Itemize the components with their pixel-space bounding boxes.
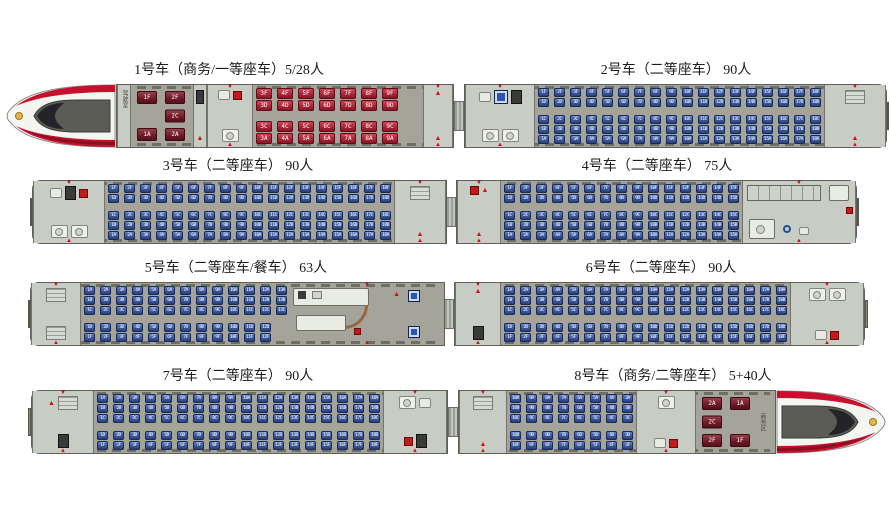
seat: 3F: [116, 333, 127, 342]
seat-group-top: 10A10B10C: [241, 394, 252, 423]
car-body-6: ▲▼▲1A1B1C1D1F2A2B2C2D2F3A3B3C3D3F4A4B4C4…: [454, 282, 865, 346]
seat: 11A: [244, 286, 255, 295]
car-strip: ▼▲1F1D1C1B1A2F2D2C2B2A3F3D3C3B3A4F4D4C4B…: [464, 84, 888, 148]
seat: 3B: [116, 296, 127, 305]
seat-group-top: 7A7B7C: [193, 394, 204, 423]
seat-group-bottom: 10D10F: [228, 323, 239, 342]
seat: 13B: [730, 125, 741, 134]
seat: 9D: [632, 323, 643, 332]
seat: 16C: [348, 211, 359, 220]
seat-group-top: 15F15D: [728, 184, 739, 203]
seat: 5A: [590, 394, 601, 403]
attendant-icon: ▲: [197, 135, 204, 142]
seat-group-bottom: 7D7F: [193, 431, 204, 450]
toilet-icon: [222, 129, 239, 142]
equipment-cabinet-icon: [65, 186, 76, 200]
seat-group-top: 15F15D: [762, 88, 773, 107]
seat: 17B: [364, 221, 375, 230]
seat-column: 1A1B1C1D1F: [97, 394, 108, 450]
vestibule: ▼▲: [33, 181, 105, 243]
seat: 11B: [257, 404, 268, 413]
seat: 4F: [552, 333, 563, 342]
seat: 4C: [552, 306, 563, 315]
service-box-icon: [846, 207, 853, 214]
door-marker-icon: ▼: [412, 390, 418, 396]
seat: 3F: [570, 88, 581, 97]
seat: 7A: [558, 394, 569, 403]
seat-group-top: 13F13D: [300, 184, 311, 203]
seat: 4C: [606, 414, 617, 423]
seat: 2D: [520, 323, 531, 332]
seat-group-bottom: 1D1F: [97, 431, 108, 450]
seat-column: 4A4B4C4D4F: [145, 394, 156, 450]
seat: 1C: [108, 211, 119, 220]
seat-group-bottom: 3D3F: [536, 323, 547, 342]
seat: 1C: [84, 306, 95, 315]
seat: 10F: [228, 333, 239, 342]
seat: 2B: [520, 296, 531, 305]
seat: 18C: [380, 211, 391, 220]
seat: 10F: [252, 184, 263, 193]
seat: 4A: [552, 231, 563, 240]
seat-group-top: 5F5D: [298, 88, 314, 111]
seat: 13F: [696, 184, 707, 193]
seat: 8A: [542, 394, 553, 403]
seat-column: 15F15D15C15B15A: [728, 184, 739, 240]
seat-column: 14F14D14C14B14A: [712, 184, 723, 240]
seat: 17A: [364, 231, 375, 240]
seat-group-bottom: 1C1B1A: [108, 211, 119, 240]
vestibule-bottom-features: [639, 438, 693, 448]
seat: 10A: [228, 286, 239, 295]
car-coupler: [454, 101, 464, 131]
seat: 9A: [526, 394, 537, 403]
seat: 10B: [252, 221, 263, 230]
seat-group-bottom: 4D4F: [145, 431, 156, 450]
seat-column: 12A12B12C12D12F: [680, 286, 691, 342]
seat: 7B: [600, 296, 611, 305]
seat: 3A: [622, 394, 633, 403]
seat: 13B: [276, 296, 287, 305]
seat: 5B: [568, 221, 579, 230]
seat: 13C: [276, 306, 287, 315]
seat: 10C: [682, 115, 693, 124]
car-strip: ▲▼▲1A1B1C1D1F2A2B2C2D2F3A3B3C3D3F4A4B4C4…: [454, 282, 868, 346]
seat-group-top: 8A8B8C: [209, 394, 220, 423]
seat-column: 6A6B6C6D6F: [164, 286, 175, 342]
service-box-icon: [404, 437, 413, 446]
train-row-1: 1号车（商务/一等座车）5/28人驾驶室1F1A2F2C2A▲▼▲3F3D3C3…: [4, 60, 888, 148]
attendant-icon: ▲: [480, 441, 487, 448]
seat: 9F: [225, 441, 236, 450]
seat: 17B: [760, 296, 771, 305]
seat: 1D: [504, 194, 515, 203]
seat-group-top: 12A12B12C: [260, 286, 271, 315]
seat: 1B: [538, 125, 549, 134]
seat-group-bottom: 4C4B4A: [586, 115, 597, 144]
seat: 8D: [616, 323, 627, 332]
seat: 8F: [209, 441, 220, 450]
seat-group-bottom: 10D10F: [241, 431, 252, 450]
seat: 10C: [252, 211, 263, 220]
seat: 18A: [810, 135, 821, 144]
seat: 15F: [332, 184, 343, 193]
seat-group-bottom: 13C13B13A: [300, 211, 311, 240]
seat-group-bottom: 5D5F: [568, 323, 579, 342]
seat: 13A: [289, 394, 300, 403]
seat: 2C: [165, 110, 185, 123]
vending-machine-icon: [408, 290, 420, 302]
luggage-rack-icon: [747, 185, 821, 201]
seat: 12D: [680, 194, 691, 203]
seat-group-bottom: 8C8B8A: [616, 211, 627, 240]
seat: 17B: [794, 125, 805, 134]
toilet-icon: [658, 396, 675, 409]
seat: 5A: [148, 286, 159, 295]
seat: 13A: [276, 286, 287, 295]
seat-column: 12F12D12C12B12A: [714, 88, 725, 144]
seat-column: 9A9B9C9D9F: [212, 286, 223, 342]
seat: 7C: [204, 211, 215, 220]
seat: 2A: [165, 128, 185, 141]
seat: 2A: [554, 135, 565, 144]
seat: 15D: [321, 431, 332, 440]
seat: 4F: [156, 184, 167, 193]
seat-column: 4A4B4C4D4F: [132, 286, 143, 342]
seat-group-bottom: 18D18F: [369, 431, 380, 450]
seat: 3F: [536, 184, 547, 193]
seat: 8C: [361, 121, 377, 132]
seat: 18F: [369, 441, 380, 450]
seat: 6F: [584, 184, 595, 193]
seat-group-bottom: 14C14B14A: [746, 115, 757, 144]
seat: 11B: [698, 125, 709, 134]
seat: 10D: [682, 98, 693, 107]
seat: 9B: [632, 296, 643, 305]
seat-group-top: 9F9D: [236, 184, 247, 203]
business-section: 1F1A2F2C2A: [131, 85, 193, 147]
seat: 12D: [260, 323, 271, 332]
seat-group-bottom: 9D9F: [212, 323, 223, 342]
seat: 1F: [504, 184, 515, 193]
seat: 4F: [132, 333, 143, 342]
seat: 11B: [268, 221, 279, 230]
seat: 2D: [113, 431, 124, 440]
seat: 2A: [113, 394, 124, 403]
seat: 9F: [632, 184, 643, 193]
seat: 18D: [380, 194, 391, 203]
door-marker-icon: ▲: [66, 238, 72, 244]
vestibule: ▼▲: [207, 85, 253, 147]
car-coupler: [448, 407, 458, 437]
seat: 16D: [778, 98, 789, 107]
seat: 8C: [196, 306, 207, 315]
seat-group-top: 8A8B8C: [616, 286, 627, 315]
seat-group-bottom: 7C7B7A: [600, 211, 611, 240]
seat: 8D: [361, 100, 377, 111]
seat: 7F: [558, 441, 569, 450]
seat-group-bottom: 12D12F: [273, 431, 284, 450]
seat: 9B: [526, 404, 537, 413]
seat: 6F: [574, 441, 585, 450]
seat-column: 13F13D13C13B13A: [300, 184, 311, 240]
vestibule-top-features: ▲: [460, 186, 498, 195]
seat-group-top: 17F17D: [364, 184, 375, 203]
seat: 3C: [570, 115, 581, 124]
seat: 17A: [794, 135, 805, 144]
seat: 15A: [728, 231, 739, 240]
seat: 9F: [236, 184, 247, 193]
seat-group-bottom: 8C8B8A: [220, 211, 231, 240]
seat-group-bottom: 4C4A: [277, 121, 293, 144]
seat-group-bottom: 12C12B12A: [714, 115, 725, 144]
seat-group-top: 11A11B11C: [664, 286, 675, 315]
seat-group-bottom: 3D3F: [129, 431, 140, 450]
seat-group-bottom: 16C16B16A: [778, 115, 789, 144]
seat: 8A: [616, 231, 627, 240]
seat: 3F: [536, 333, 547, 342]
seat: 15B: [728, 221, 739, 230]
seat-column: 7A7B7C7D7F: [600, 286, 611, 342]
door-marker-icon: ▲: [852, 142, 858, 148]
seat: 7C: [340, 121, 356, 132]
seat-group-top: 6A6B6C: [584, 286, 595, 315]
business-seat-column: 2F2C2A: [165, 89, 185, 143]
seat: 11D: [244, 323, 255, 332]
seat-column: 6F6D6C6B6A: [618, 88, 629, 144]
seat: 13D: [289, 431, 300, 440]
seat-column: 7A7B7C7D7F: [193, 394, 204, 450]
seat: 8C: [650, 115, 661, 124]
seat-column: 1F1D1C1B1A: [108, 184, 119, 240]
seat: 2C: [113, 414, 124, 423]
door-marker-icon: ▲: [824, 340, 830, 346]
seat: 8F: [542, 441, 553, 450]
seat-column: 16A16B16C16D16F: [744, 286, 755, 342]
seat-column: 18F18D18C18B18A: [810, 88, 821, 144]
train-row-2: 3号车（二等座车） 90人▼▲1F1D1C1B1A2F2D2C2B2A3F3D3…: [30, 156, 858, 244]
door-marker-icon: ▼: [852, 84, 858, 90]
seat: 3B: [536, 221, 547, 230]
seat-column: 4F4D4C4B4A: [586, 88, 597, 144]
seat: 7C: [193, 414, 204, 423]
seat: 18F: [810, 88, 821, 97]
seat-group-top: 9A9B9C: [632, 286, 643, 315]
area-label: 驾驶室: [121, 90, 127, 108]
seat: 2C: [554, 115, 565, 124]
seat: 1A: [504, 286, 515, 295]
seat-column: 3A3B3C3D3F: [129, 394, 140, 450]
seat: 7F: [193, 441, 204, 450]
seat: 7C: [180, 306, 191, 315]
seat-group-top: 2F2D: [124, 184, 135, 203]
seat: 1D: [108, 194, 119, 203]
seat: 6D: [319, 100, 335, 111]
seat: 4D: [552, 323, 563, 332]
seat-column: 16A16B16C16D16F: [337, 394, 348, 450]
seat-column: 9F9D9C9B9A: [666, 88, 677, 144]
seat: 10B: [241, 404, 252, 413]
sink-icon: [218, 90, 230, 100]
seat: 10B: [648, 221, 659, 230]
service-box-icon: [354, 328, 361, 335]
seat-group-top: 10F10D: [648, 184, 659, 203]
seat-group-top: 7A7B7C: [180, 286, 191, 315]
seat: 8C: [542, 414, 553, 423]
seat-group-bottom: 10C10B10A: [252, 211, 263, 240]
seat-group-top: 11A11B11C: [244, 286, 255, 315]
seat-group-top: 12F12D: [714, 88, 725, 107]
seat: 4A: [606, 394, 617, 403]
seat-group-top: 6A6B6C: [164, 286, 175, 315]
kitchen-counter: [296, 315, 346, 331]
seat: 12B: [260, 296, 271, 305]
seat-column: 14A14B14C14D14F: [712, 286, 723, 342]
seat-column: 6A6B6C6D6F: [177, 394, 188, 450]
seat: 5D: [161, 431, 172, 440]
vestibule-top-features: 驾驶室: [120, 90, 128, 108]
seat: 5A: [298, 133, 314, 144]
door-marker-icon: ▲: [475, 340, 481, 346]
seat: 14D: [746, 98, 757, 107]
vestibule-bottom-features: [468, 129, 532, 142]
vestibule-bottom-features: ▲: [460, 231, 498, 238]
door-marker-icon: ▲: [480, 448, 486, 454]
car-5: 5号车（二等座车/餐车） 63人▼▲1A1B1C1D1F2A2B2C2D2F3A…: [28, 258, 444, 346]
seat-group-bottom: 2C2B2A: [554, 115, 565, 144]
seat: 12C: [273, 414, 284, 423]
seat: 10D: [648, 323, 659, 332]
seat: 9D: [236, 194, 247, 203]
seat: 8B: [220, 221, 231, 230]
seat-column: 17A17B17C17D17F: [760, 286, 771, 342]
vestibule: ▼▲: [790, 283, 864, 345]
seat: 1D: [504, 323, 515, 332]
seat-group-bottom: 11C11B11A: [664, 211, 675, 240]
door-marker-icon: ▼: [663, 390, 669, 396]
seat-section: 1A1B1C1D1F2A2B2C2D2F3A3B3C3D3F4A4B4C4D4F…: [94, 391, 383, 453]
seat: 10F: [241, 441, 252, 450]
car-title: 6号车（二等座车） 90人: [454, 258, 868, 282]
vestibule-bottom-features: ▲: [462, 441, 504, 448]
seat: 17A: [353, 394, 364, 403]
seat: 9B: [236, 221, 247, 230]
seat-group-top: 13A13B13C: [276, 286, 287, 315]
seat: 1F: [84, 333, 95, 342]
seat: 1A: [108, 231, 119, 240]
seat-group-top: 3F3D: [256, 88, 272, 111]
seat: 6C: [574, 414, 585, 423]
seat-group-top: 6F6D: [618, 88, 629, 107]
seat: 13C: [696, 211, 707, 220]
car-title: 8号车（商务/二等座车） 5+40人: [458, 366, 888, 390]
seat-column: 15A15B15C15D15F: [321, 394, 332, 450]
car-strip: ▲▼▲1A1B1C1D1F2A2B2C2D2F3A3B3C3D3F4A4B4C4…: [28, 390, 448, 454]
seat-group-bottom: 13D13F: [696, 323, 707, 342]
seat: 11F: [257, 441, 268, 450]
seat: 4C: [156, 211, 167, 220]
seat: 4C: [145, 414, 156, 423]
seat: 17D: [760, 323, 771, 332]
seat-group-top: 10A10B10C: [648, 286, 659, 315]
seat: 16D: [744, 323, 755, 332]
door-marker-icon: ▲: [663, 448, 669, 454]
seat: 9C: [666, 115, 677, 124]
seat: 3C: [140, 211, 151, 220]
car-7: 7号车（二等座车） 90人▲▼▲1A1B1C1D1F2A2B2C2D2F3A3B…: [28, 366, 448, 454]
seat: 4B: [552, 221, 563, 230]
seat-group-bottom: 14D14F: [305, 431, 316, 450]
seat-group-top: 5F5D: [172, 184, 183, 203]
seat: 10A: [648, 286, 659, 295]
seat: 9B: [225, 404, 236, 413]
seat: 17D: [794, 98, 805, 107]
seat-group-top: 3A3B3C: [536, 286, 547, 315]
seat-group-top: 5F5D: [568, 184, 579, 203]
seat: 8A: [616, 286, 627, 295]
vestibule-top-features: [386, 396, 444, 409]
seat: 12A: [284, 231, 295, 240]
seat: 3D: [140, 194, 151, 203]
seat: 6B: [618, 125, 629, 134]
sink-icon: [654, 438, 666, 448]
seat-group-bottom: 8D8F: [209, 431, 220, 450]
seat-group-bottom: 7D7F: [600, 323, 611, 342]
seat: 2A: [100, 286, 111, 295]
seat: 12F: [273, 441, 284, 450]
vestibule-top-features: [793, 288, 861, 301]
seat: 14A: [746, 135, 757, 144]
seat: 3F: [129, 441, 140, 450]
seat-group-top: 11F11D: [698, 88, 709, 107]
seat: 11C: [257, 414, 268, 423]
seat-group-bottom: 10C10B10A: [682, 115, 693, 144]
seat: 8B: [542, 404, 553, 413]
seat: 1B: [97, 404, 108, 413]
toilet-icon: [809, 288, 826, 301]
seat: 1D: [538, 98, 549, 107]
seat: 2D: [124, 194, 135, 203]
seat-column: 8A8B8C8D8F: [196, 286, 207, 342]
seat: 13C: [730, 115, 741, 124]
car-2: 2号车（二等座车） 90人▼▲1F1D1C1B1A2F2D2C2B2A3F3D3…: [464, 60, 888, 148]
seat: 12B: [273, 404, 284, 413]
seat: 8F: [196, 333, 207, 342]
seat: 6D: [177, 431, 188, 440]
seat-group-top: 8A8B8C: [542, 394, 553, 423]
seat: 14D: [316, 194, 327, 203]
seat: 8F: [616, 184, 627, 193]
seat: 5D: [602, 98, 613, 107]
seat: 7D: [193, 431, 204, 440]
vestibule-bottom-features: ▲: [827, 135, 883, 142]
seat-column: 7A7B7C7D7F: [180, 286, 191, 342]
seat-column: 2A2B2C2D2F: [520, 286, 531, 342]
car-strip: 驾驶室1F1A2F2C2A▲▼▲3F3D3C3A4F4D4C4A5F5D5C5A…: [4, 84, 454, 148]
seat: 6A: [584, 286, 595, 295]
car-strip: ▲▼▲10A10B10C10D10F9A9B9C9D9F8A8B8C8D8F7A…: [458, 390, 888, 454]
seat-group-bottom: 17C17B17A: [794, 115, 805, 144]
seat: 16A: [778, 135, 789, 144]
seat: 15B: [728, 296, 739, 305]
seat: 8C: [209, 414, 220, 423]
seat: 14D: [305, 431, 316, 440]
door-marker-icon: ▼: [475, 282, 481, 288]
seat: 17F: [760, 333, 771, 342]
seat: 12F: [680, 184, 691, 193]
seat: 4F: [145, 441, 156, 450]
seat-column: 9F9D9C9B9A: [236, 184, 247, 240]
